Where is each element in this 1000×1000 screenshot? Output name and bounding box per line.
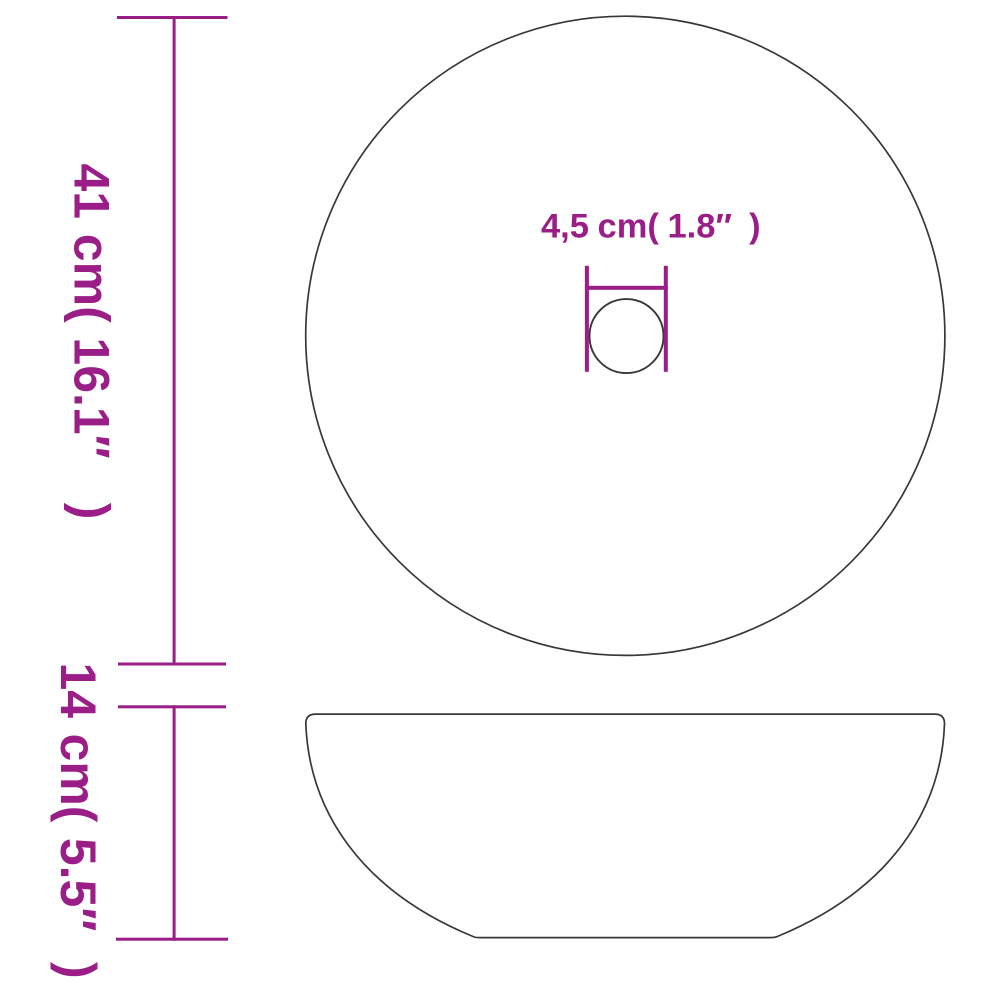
svg-text:41 cm( 16.1″ ): 41 cm( 16.1″ ) <box>64 164 120 520</box>
svg-text:4,5 cm( 1.8″ ): 4,5 cm( 1.8″ ) <box>541 208 761 246</box>
svg-text:14 cm( 5.5″ ): 14 cm( 5.5″ ) <box>50 663 106 979</box>
